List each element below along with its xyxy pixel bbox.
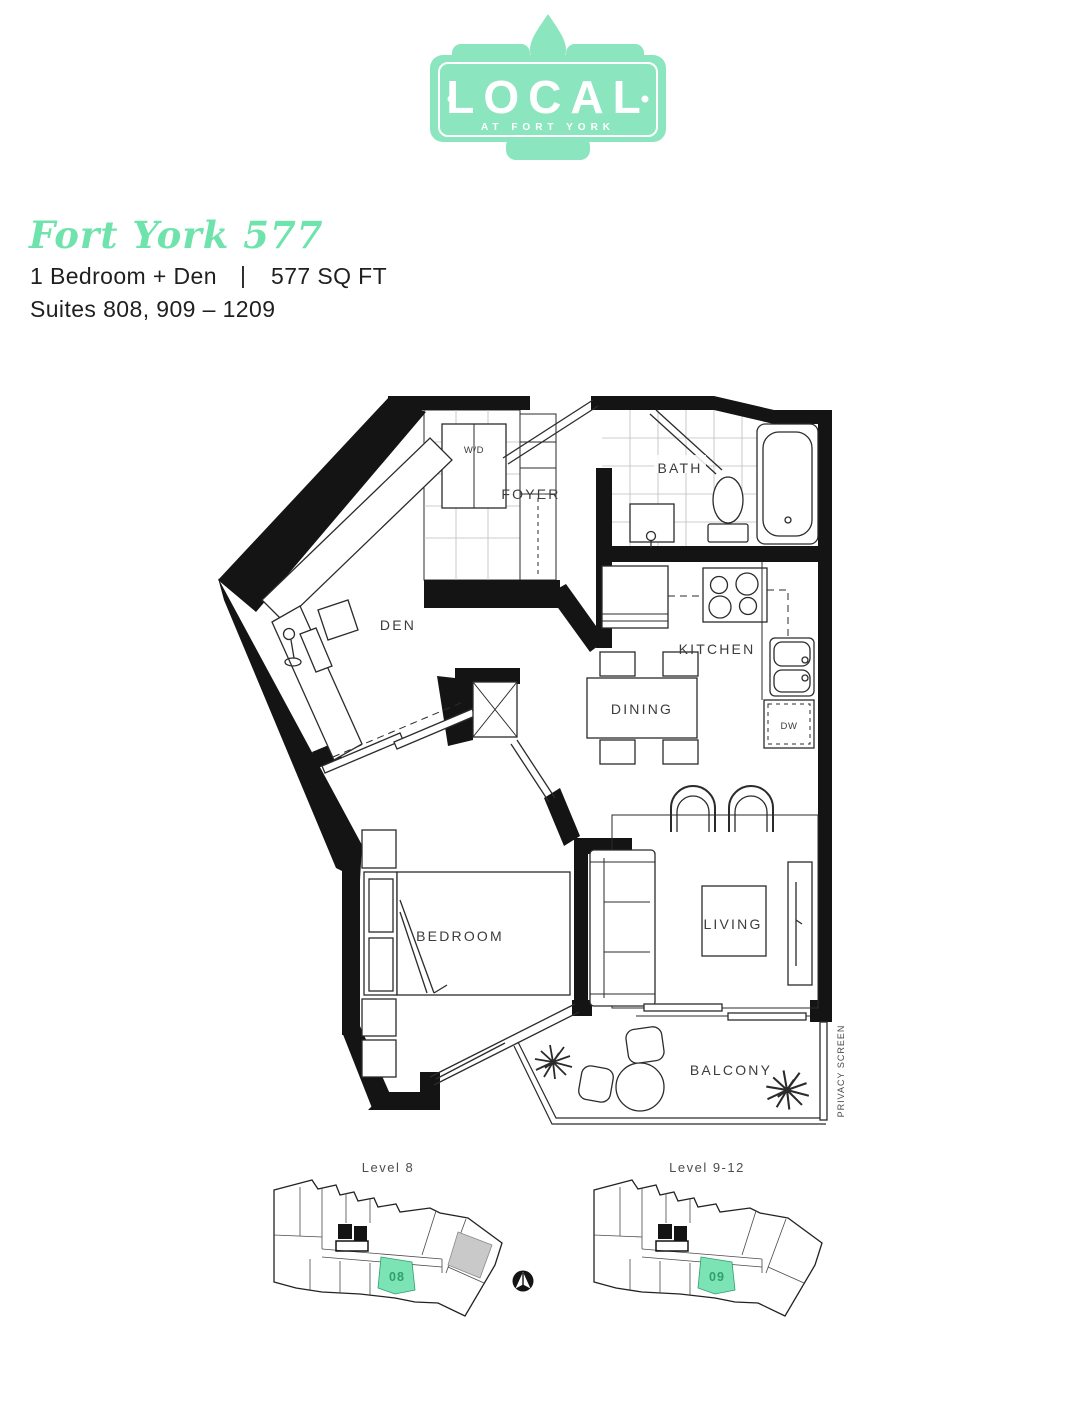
kitchen-label: KITCHEN xyxy=(679,641,756,657)
keyplan-unit-08-label: 08 xyxy=(389,1270,405,1284)
privacy-screen-label: PRIVACY SCREEN xyxy=(836,1025,846,1118)
unit-spec: 1 Bedroom + Den xyxy=(30,263,217,289)
tv-console xyxy=(788,862,812,985)
living-balcony-door xyxy=(636,1004,810,1020)
sofa xyxy=(590,850,655,1006)
kitchen-sink xyxy=(770,638,814,696)
balcony-plant-icon xyxy=(766,1070,809,1109)
logo-tagline: AT FORT YORK xyxy=(481,122,615,133)
den-chair xyxy=(318,600,358,640)
local-logo: LOCAL AT FORT YORK xyxy=(430,14,666,160)
balcony-plant-icon xyxy=(535,1045,572,1079)
fridge xyxy=(602,566,668,628)
stove xyxy=(703,568,767,622)
den-label: DEN xyxy=(380,617,416,633)
dishwasher: DW xyxy=(764,700,814,748)
privacy-screen xyxy=(820,1022,827,1120)
bedroom-door xyxy=(511,740,555,802)
bedroom-balcony-door xyxy=(430,1004,579,1085)
living-label: LIVING xyxy=(703,916,762,932)
foyer-label: FOYER xyxy=(501,486,560,502)
balcony-furniture xyxy=(577,1026,665,1111)
dining-label: DINING xyxy=(611,701,673,717)
keyplan-level9-12 xyxy=(594,1180,822,1316)
keyplan-level8-title: Level 8 xyxy=(362,1160,414,1175)
dishwasher-label: DW xyxy=(780,721,797,732)
floor-plan: W/D xyxy=(218,396,846,1124)
page-title: Fort York 577 xyxy=(28,213,324,257)
lounge-chairs xyxy=(671,786,773,832)
logo-wordmark: LOCAL xyxy=(446,71,649,123)
washer-dryer-label: W/D xyxy=(464,445,484,456)
bedroom-label: BEDROOM xyxy=(416,928,504,944)
title-block: Fort York 577 1 Bedroom + Den | 577 SQ F… xyxy=(28,213,387,322)
unit-area: 577 SQ FT xyxy=(271,263,387,289)
bathtub xyxy=(757,424,818,544)
spec-divider: | xyxy=(240,262,246,288)
north-arrow-icon xyxy=(513,1271,534,1292)
keyplan-level8 xyxy=(274,1180,502,1316)
unit-suites: Suites 808, 909 – 1209 xyxy=(30,296,275,322)
keyplan-unit-09-label: 09 xyxy=(709,1270,725,1284)
floorplan-page: LOCAL AT FORT YORK Fort York 577 1 Bedro… xyxy=(0,0,1080,1422)
bath-sink xyxy=(630,504,674,548)
balcony-label: BALCONY xyxy=(690,1062,772,1078)
utility-closet xyxy=(473,682,517,737)
bath-label: BATH xyxy=(657,460,702,476)
keyplan-level9-12-title: Level 9-12 xyxy=(669,1160,745,1175)
